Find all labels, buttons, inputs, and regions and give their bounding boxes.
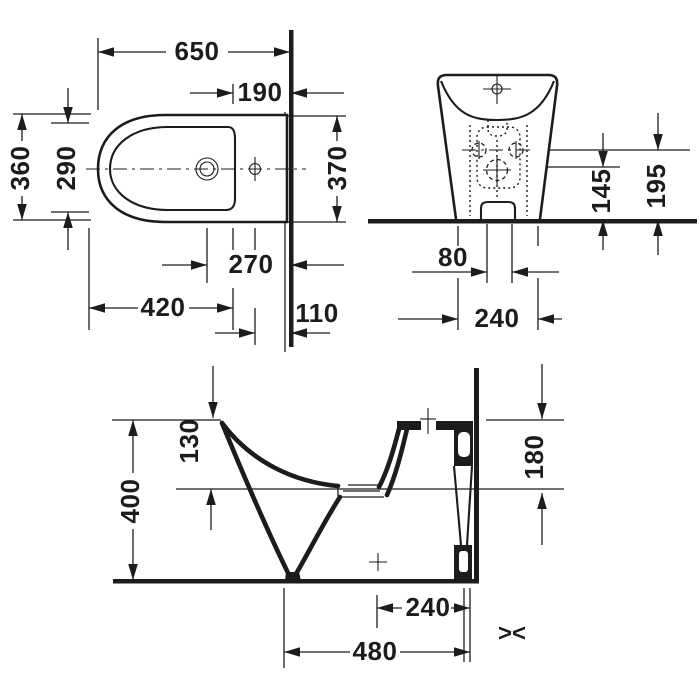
- dim-rim-wall-label: 190: [238, 77, 283, 107]
- dim-base-width-label: 240: [475, 303, 520, 333]
- dim-height-label: 400: [115, 479, 145, 524]
- floor-outlet-cross: [369, 553, 387, 571]
- deck-bar-left: [397, 421, 421, 430]
- plan-view: 650 190 360 290 370 270 4: [5, 30, 352, 352]
- front-face-outer: [222, 423, 290, 577]
- wall-fit-symbol: ><: [498, 620, 526, 647]
- dim-depth-label: 480: [353, 636, 398, 666]
- fixing-pocket: [458, 432, 470, 457]
- technical-drawing-page: 650 190 360 290 370 270 4: [0, 0, 700, 700]
- wall-line-plan: [289, 30, 294, 347]
- basin-curve-side: [222, 423, 338, 486]
- dim-width-back-label: 370: [322, 146, 352, 191]
- back-wall-taper-right: [467, 466, 472, 545]
- dim-holes-span-label: 80: [438, 242, 468, 272]
- dim-length-label: 650: [175, 36, 220, 66]
- dim-width-front-label: 360: [5, 146, 35, 191]
- dim-holes-height-label: 195: [641, 164, 671, 209]
- outlet-window: [459, 551, 468, 572]
- side-view: 130 400 180 240 480 ><: [112, 364, 564, 668]
- front-face-inner: [296, 497, 340, 574]
- dim-hole-wall-label: 110: [295, 298, 338, 328]
- dim-front-drain-label: 420: [141, 292, 186, 322]
- bidet-section-side: [222, 408, 473, 583]
- dim-bowl-width-label: 290: [51, 146, 81, 191]
- front-view: 145 195 80 240: [368, 75, 697, 333]
- side-dimensions: 130 400 180 240 480 ><: [115, 364, 549, 666]
- dim-outlet-height-label: 145: [586, 169, 616, 214]
- dim-rim-depth-label: 130: [174, 419, 204, 464]
- wall-line-side: [474, 368, 479, 583]
- basin-back-wall: [379, 429, 399, 487]
- dim-outlet-wall-label: 240: [406, 592, 451, 622]
- floor-line-side: [113, 579, 479, 584]
- dim-back-height-label: 180: [519, 435, 549, 480]
- back-wall-taper-left: [454, 466, 461, 545]
- floor-line-front: [368, 219, 697, 224]
- technical-drawing-canvas: 650 190 360 290 370 270 4: [0, 0, 700, 700]
- dim-drain-wall-label: 270: [229, 249, 274, 279]
